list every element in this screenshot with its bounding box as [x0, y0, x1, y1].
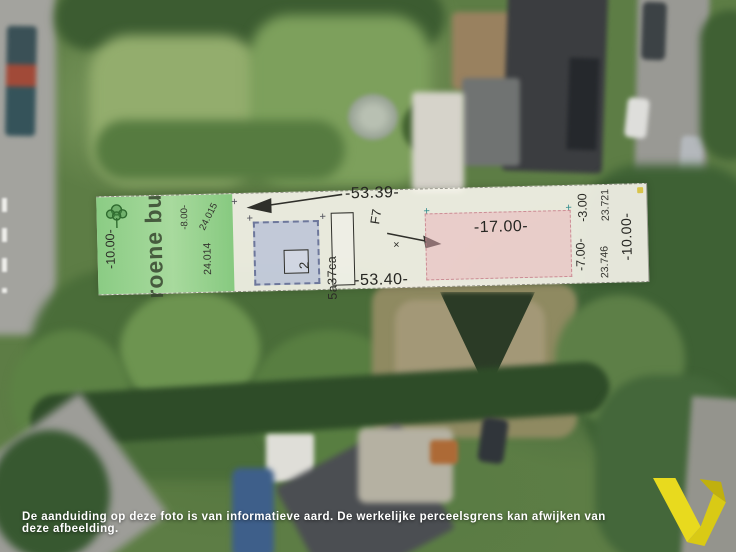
photo-round-pool — [348, 94, 398, 140]
dim-pink-length: -17.00- — [474, 218, 529, 237]
yellow-ribbon-v-logo — [648, 478, 728, 546]
dim-buffer: -8.00- — [179, 205, 191, 230]
dim-bottom-length: -53.40- — [354, 271, 409, 290]
photo-truck — [5, 26, 37, 137]
parcel-plan-overlay: -10.00- roene bu -8.00- 24.015 24.014 + … — [96, 183, 649, 295]
photo-shrub-row — [95, 120, 345, 180]
parcel-area-label: 5a37ca — [325, 256, 340, 300]
elevation-point: 24.014 — [201, 243, 214, 275]
dim-right-back: -3.00 — [575, 193, 590, 222]
tick: + — [231, 196, 238, 208]
dim-right-front: -7.00- — [573, 238, 588, 271]
tick: + — [246, 213, 253, 225]
photo-white-building — [412, 92, 464, 192]
building-number-box: 2 — [284, 249, 310, 274]
disclaimer-text: De aanduiding op deze foto is van inform… — [22, 511, 622, 535]
dim-left-width: -10.00- — [103, 229, 118, 269]
tick: + — [423, 205, 430, 217]
cross-mark: × — [393, 239, 400, 251]
dim-right-width: -10.00- — [618, 212, 635, 260]
photo-car-white — [624, 97, 650, 139]
photo-solar-panels — [566, 58, 599, 151]
dim-top-length: -53.39- — [345, 184, 400, 203]
photo-road-lane-markings — [2, 198, 7, 293]
tick: + — [565, 202, 572, 214]
photo-blue-tarp — [232, 468, 274, 552]
photo-orange-object — [430, 440, 458, 464]
tree-symbol — [104, 202, 129, 231]
elevation-point: 23.746 — [599, 246, 612, 278]
boundary-arrow-left-icon — [244, 192, 345, 216]
boundary-marker-yellow — [637, 187, 643, 193]
photo-van — [641, 2, 667, 61]
parcel-area-box: 5a37ca — [331, 212, 356, 286]
aerial-photo-frame: -10.00- roene bu -8.00- 24.015 24.014 + … — [0, 0, 736, 552]
green-buffer-label: roene bu — [140, 193, 170, 299]
building-number: 2 — [297, 261, 312, 269]
elevation-point: 23.721 — [599, 189, 612, 221]
ref-point-label: F7 — [367, 208, 384, 225]
tick: + — [319, 211, 326, 223]
photo-garage-roof — [462, 78, 520, 166]
photo-trees — [700, 10, 736, 160]
